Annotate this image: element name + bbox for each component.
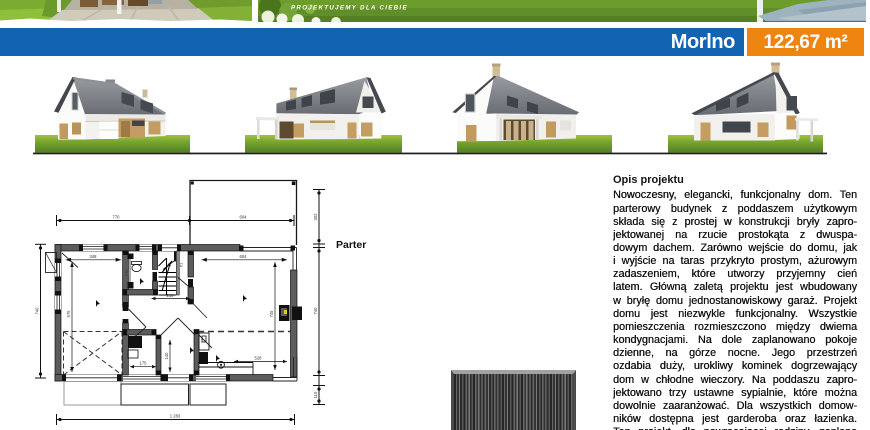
- svg-text:PROJEKTUJEMY DLA CIEBIE: PROJEKTUJEMY DLA CIEBIE: [291, 5, 408, 12]
- svg-text:740: 740: [35, 307, 40, 315]
- svg-text:140: 140: [164, 352, 169, 360]
- svg-text:61: 61: [179, 262, 184, 267]
- svg-text:1 283: 1 283: [170, 414, 181, 419]
- svg-text:740: 740: [313, 307, 318, 315]
- svg-text:238: 238: [125, 269, 130, 277]
- svg-text:210: 210: [167, 293, 175, 298]
- svg-text:110: 110: [313, 391, 318, 398]
- svg-text:302: 302: [313, 213, 318, 221]
- svg-text:745: 745: [269, 310, 274, 318]
- svg-text:528: 528: [255, 356, 263, 361]
- svg-text:604: 604: [240, 254, 248, 259]
- svg-text:175: 175: [140, 361, 148, 366]
- svg-text:348: 348: [90, 254, 98, 259]
- svg-text:604: 604: [240, 215, 248, 220]
- svg-text:770: 770: [113, 215, 121, 220]
- svg-text:575: 575: [66, 310, 71, 318]
